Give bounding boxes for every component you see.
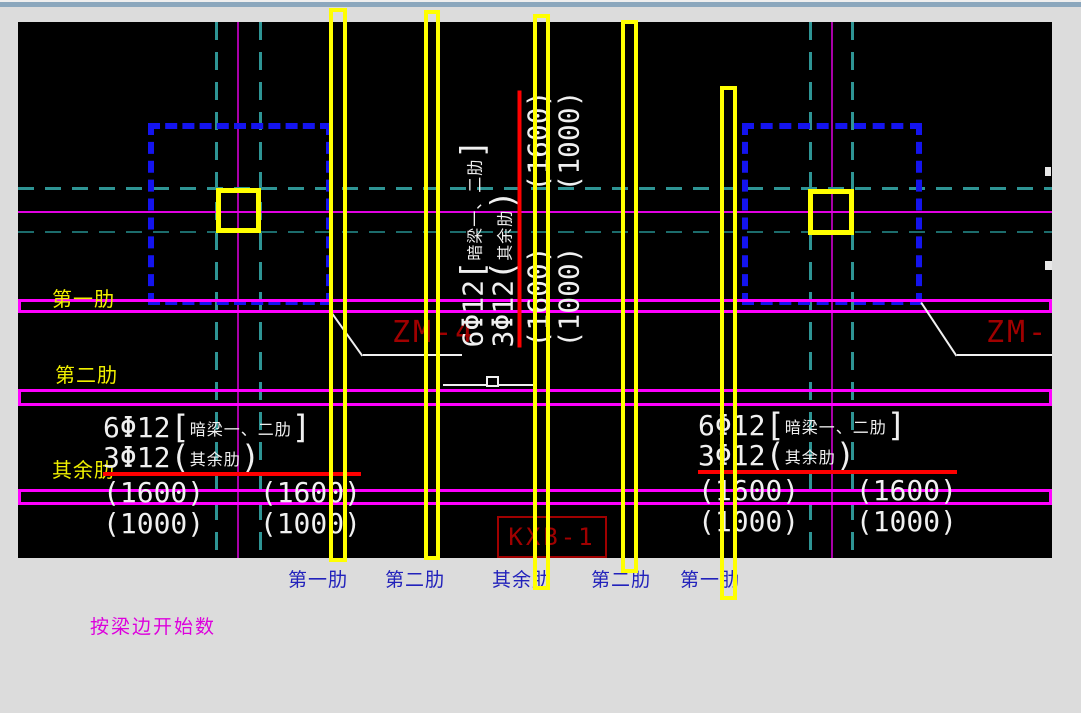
tag-zm-right: ZM- (986, 315, 1049, 350)
rebar-main-line: 6Φ12[暗梁一、二肋] (456, 91, 488, 348)
rebar-qty-main: 6Φ12 (460, 280, 488, 347)
dim-value: (1000) (556, 91, 584, 192)
highlight-rib-box-5[interactable] (720, 86, 737, 600)
clipped-text-mark (1045, 261, 1052, 270)
rib-label-bottom-2: 第二肋 (385, 565, 445, 592)
rebar-main-line: 6Φ12[暗梁一、二肋] (103, 410, 361, 442)
highlight-rib-box-2[interactable] (424, 10, 440, 560)
rib-label-left-2: 第二肋 (55, 359, 118, 388)
section-symbol-box (486, 376, 499, 387)
rebar-dims-lower: (1000) (1000) (553, 91, 584, 348)
dim-value: (1000) (856, 508, 957, 536)
slab-tag-text: KXB-1 (508, 523, 595, 551)
column-square-right[interactable] (808, 189, 854, 235)
leader-line-horizontal-left (363, 354, 462, 356)
bracket-close: ] (887, 410, 906, 440)
paren-open: ( (170, 442, 189, 472)
highlight-rib-box-4[interactable] (621, 20, 638, 573)
paren-open: ( (487, 261, 517, 280)
rebar-dims-lower: (1000) (1000) (103, 507, 361, 538)
paren-close: ) (487, 191, 517, 210)
application-window: 第一肋 第二肋 其余肋 ZM-4 ZM- 6Φ12[暗梁一、二肋] 3Φ12(其… (0, 0, 1081, 713)
clipped-text-mark (1045, 167, 1051, 176)
dim-value: (1000) (556, 246, 584, 347)
dim-value: (1000) (103, 510, 204, 538)
rebar-scope-rest: 其余肋 (190, 450, 241, 472)
window-top-strip (0, 2, 1081, 7)
dim-value: (1000) (698, 508, 799, 536)
rebar-annotation-left: 6Φ12[暗梁一、二肋] 3Φ12(其余肋) (1600) (1600) (10… (103, 410, 361, 538)
rib-label-left-1: 第一肋 (52, 283, 115, 312)
highlight-rib-box-1[interactable] (329, 8, 347, 562)
rebar-qty-main: 6Φ12 (103, 414, 170, 442)
dim-value: (1600) (103, 479, 204, 507)
rebar-qty-rest: 3Φ12 (490, 280, 518, 347)
rebar-scope-rest: 其余肋 (495, 210, 517, 261)
rebar-qty-rest: 3Φ12 (103, 444, 170, 472)
counting-note: 按梁边开始数 (90, 612, 216, 639)
rebar-scope-main: 暗梁一、二肋 (465, 159, 487, 261)
leader-line-horizontal-right (957, 354, 1052, 356)
paren-close: ) (241, 442, 260, 472)
column-square-left[interactable] (216, 188, 261, 233)
dim-value: (1600) (698, 477, 799, 505)
rib-label-bottom-1: 第一肋 (288, 565, 348, 592)
rebar-dims-upper: (1600) (1600) (103, 476, 361, 507)
paren-open: ( (765, 440, 784, 470)
rebar-rest-line: 3Φ12(其余肋) (103, 442, 361, 472)
paren-close: ) (836, 440, 855, 470)
rebar-scope-rest: 其余肋 (785, 448, 836, 470)
dim-value: (1600) (856, 477, 957, 505)
bracket-close: ] (457, 140, 487, 159)
slab-tag-box: KXB-1 (497, 516, 607, 558)
bracket-close: ] (292, 412, 311, 442)
rebar-rest-line: 3Φ12(其余肋) (488, 91, 518, 348)
rebar-annotation-center-rotated: 6Φ12[暗梁一、二肋] 3Φ12(其余肋) (1600) (1600) (10… (456, 91, 584, 348)
highlight-rib-box-3[interactable] (533, 14, 550, 590)
